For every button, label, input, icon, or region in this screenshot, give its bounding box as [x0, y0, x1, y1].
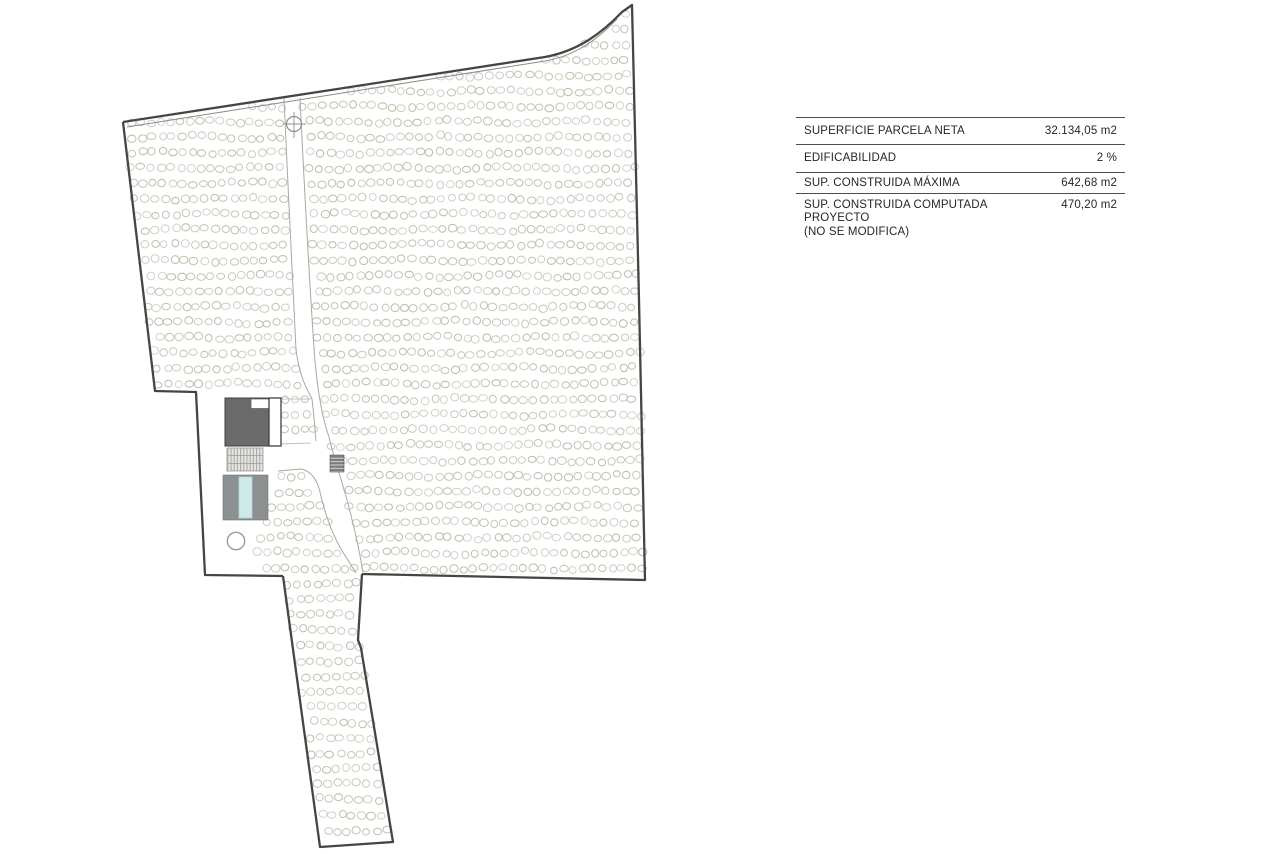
olive-tree — [516, 135, 524, 142]
olive-tree — [575, 149, 582, 156]
olive-tree — [373, 320, 380, 326]
olive-tree — [432, 517, 440, 524]
olive-tree — [438, 103, 445, 110]
olive-tree — [524, 119, 531, 125]
olive-tree — [439, 226, 446, 233]
olive-tree — [346, 444, 355, 450]
olive-tree — [420, 256, 427, 263]
olive-tree — [462, 551, 469, 559]
olive-tree — [185, 288, 192, 295]
olive-tree — [366, 149, 374, 156]
olive-tree — [553, 488, 561, 496]
olive-tree — [243, 321, 250, 328]
olive-tree — [471, 518, 479, 526]
olive-tree — [608, 458, 615, 466]
olive-tree — [589, 210, 596, 217]
olive-tree — [477, 242, 486, 249]
olive-tree — [358, 193, 366, 201]
olive-tree — [574, 181, 583, 187]
olive-tree — [263, 321, 270, 327]
olive-tree — [200, 195, 208, 203]
olive-tree — [630, 379, 637, 386]
olive-tree — [352, 827, 360, 834]
olive-tree — [476, 443, 483, 450]
path-left-edge — [284, 98, 316, 441]
olive-tree — [547, 258, 555, 265]
olive-tree — [349, 194, 356, 201]
olive-tree — [451, 366, 459, 373]
olive-tree — [321, 396, 328, 403]
olive-tree — [465, 472, 472, 480]
olive-tree — [467, 86, 475, 93]
olive-tree — [631, 288, 639, 294]
olive-tree — [340, 811, 347, 818]
olive-tree — [249, 178, 258, 185]
olive-tree — [405, 488, 414, 495]
olive-tree — [586, 102, 593, 109]
olive-tree — [167, 133, 175, 140]
olive-tree — [405, 473, 413, 480]
olive-tree — [387, 149, 394, 156]
olive-tree — [400, 456, 407, 463]
olive-tree — [398, 241, 406, 248]
olive-tree — [456, 181, 463, 188]
olive-tree — [205, 117, 213, 123]
olive-tree — [330, 226, 338, 233]
olive-tree — [420, 567, 428, 573]
olive-tree — [409, 240, 416, 247]
olive-tree — [306, 658, 313, 664]
olive-tree — [527, 348, 534, 355]
olive-tree — [312, 565, 319, 573]
olive-tree — [490, 564, 497, 571]
olive-tree — [380, 195, 388, 202]
olive-tree — [627, 242, 634, 249]
olive-tree — [451, 551, 458, 558]
olive-tree — [247, 163, 254, 171]
olive-tree — [332, 579, 340, 586]
olive-tree — [521, 520, 528, 527]
olive-tree — [325, 828, 333, 835]
olive-tree — [390, 564, 398, 570]
olive-tree — [427, 256, 435, 263]
olive-tree — [414, 472, 422, 479]
olive-tree — [395, 149, 403, 155]
olive-tree — [492, 380, 500, 386]
olive-tree — [477, 351, 485, 358]
olive-tree — [631, 488, 640, 495]
olive-tree — [286, 489, 293, 496]
olive-tree — [329, 257, 337, 263]
olive-tree — [312, 318, 321, 324]
olive-tree — [449, 303, 457, 310]
olive-tree — [244, 334, 251, 341]
row-value: 470,20 m2 — [1061, 199, 1117, 212]
olive-tree — [369, 193, 376, 200]
olive-tree — [616, 87, 624, 94]
olive-tree — [504, 488, 513, 494]
olive-tree — [539, 425, 547, 432]
olive-tree — [316, 751, 324, 758]
olive-tree — [295, 534, 303, 541]
olive-tree — [409, 226, 417, 234]
olive-tree — [367, 179, 375, 187]
olive-tree — [533, 504, 542, 511]
olive-tree — [339, 428, 347, 435]
olive-tree — [317, 241, 326, 249]
olive-tree — [426, 89, 434, 95]
olive-tree — [309, 426, 317, 432]
olive-tree — [380, 456, 387, 463]
olive-tree — [441, 303, 449, 311]
olive-tree — [473, 486, 481, 493]
olive-tree — [594, 352, 603, 358]
olive-tree — [585, 181, 594, 188]
olive-tree — [576, 194, 584, 201]
olive-tree — [623, 71, 631, 77]
olive-tree — [329, 242, 336, 248]
olive-tree — [415, 180, 423, 187]
olive-tree — [477, 101, 484, 109]
olive-tree — [583, 134, 591, 141]
olive-tree — [345, 287, 353, 294]
olive-tree — [474, 133, 482, 140]
olive-tree — [560, 209, 567, 217]
olive-tree — [240, 257, 248, 264]
olive-tree — [435, 166, 443, 174]
olive-tree — [205, 319, 212, 325]
olive-tree — [420, 196, 427, 203]
olive-tree — [501, 412, 508, 419]
olive-tree — [447, 89, 455, 96]
olive-tree — [496, 87, 504, 94]
olive-tree — [364, 796, 373, 803]
olive-tree — [462, 518, 470, 525]
olive-tree — [325, 795, 333, 802]
olive-tree — [505, 504, 513, 511]
olive-tree — [588, 364, 596, 372]
olive-tree — [220, 258, 227, 265]
olive-tree — [553, 148, 561, 155]
olive-tree — [376, 798, 383, 805]
olive-tree — [324, 382, 332, 388]
olive-tree — [609, 210, 617, 217]
olive-tree — [391, 379, 399, 387]
olive-tree — [354, 797, 362, 804]
olive-tree — [575, 351, 583, 358]
olive-tree — [620, 520, 628, 527]
olive-tree — [622, 471, 630, 478]
site-data-table: SUPERFICIE PARCELA NETA 32.134,05 m2 EDI… — [796, 117, 1125, 246]
olive-tree — [619, 378, 628, 384]
olive-tree — [187, 118, 194, 125]
olive-tree — [357, 135, 365, 143]
olive-tree — [563, 443, 572, 449]
olive-tree — [592, 486, 600, 493]
olive-tree — [576, 257, 584, 265]
olive-tree — [178, 133, 187, 140]
olive-tree — [583, 441, 591, 449]
olive-tree — [319, 226, 328, 233]
olive-tree — [555, 350, 563, 357]
olive-tree — [554, 473, 562, 480]
olive-tree — [142, 256, 149, 263]
olive-tree — [465, 502, 472, 508]
olive-tree — [196, 117, 204, 124]
olive-tree — [534, 473, 542, 479]
olive-tree — [539, 305, 547, 312]
olive-tree — [310, 209, 317, 217]
olive-tree — [589, 301, 596, 308]
olive-tree — [334, 610, 342, 616]
olive-tree — [601, 58, 608, 64]
olive-tree — [375, 471, 383, 478]
olive-tree — [270, 256, 278, 262]
olive-tree — [586, 458, 595, 465]
olive-tree — [389, 257, 396, 264]
olive-tree — [597, 302, 605, 309]
olive-tree — [374, 379, 381, 387]
table-row: SUP. CONSTRUIDA MÁXIMA 642,68 m2 — [796, 172, 1125, 193]
olive-tree — [575, 73, 583, 79]
olive-tree — [225, 319, 232, 325]
olive-tree — [570, 410, 578, 417]
olive-tree — [403, 162, 411, 170]
olive-tree — [451, 517, 458, 525]
olive-tree — [320, 196, 327, 203]
olive-tree — [573, 57, 581, 64]
olive-tree — [581, 116, 589, 123]
olive-tree — [503, 163, 511, 170]
olive-tree — [341, 394, 349, 401]
olive-tree — [536, 104, 543, 110]
olive-tree — [265, 380, 272, 387]
olive-tree — [577, 242, 584, 249]
olive-tree — [598, 226, 607, 234]
olive-tree — [266, 271, 274, 277]
olive-tree — [543, 118, 551, 125]
olive-tree — [519, 211, 528, 218]
olive-tree — [228, 178, 235, 185]
olive-tree — [553, 440, 561, 447]
olive-tree — [147, 164, 154, 171]
olive-tree — [366, 134, 375, 141]
olive-tree — [492, 336, 500, 343]
olive-tree — [519, 304, 527, 310]
olive-tree — [322, 365, 329, 372]
olive-tree — [563, 117, 571, 123]
olive-tree — [506, 271, 513, 279]
olive-tree — [305, 165, 313, 172]
olive-tree — [549, 302, 557, 310]
olive-tree — [277, 135, 284, 141]
olive-tree — [491, 520, 498, 527]
olive-tree — [404, 334, 412, 341]
olive-tree — [383, 163, 391, 170]
olive-tree — [307, 735, 314, 742]
olive-tree — [160, 133, 167, 140]
olive-tree — [374, 828, 382, 835]
olive-tree — [590, 410, 599, 417]
olive-tree — [147, 133, 156, 140]
olive-tree — [605, 102, 613, 108]
olive-tree — [364, 334, 373, 341]
olive-tree — [404, 120, 412, 126]
olive-tree — [425, 134, 432, 141]
olive-tree — [242, 211, 250, 218]
olive-tree — [249, 151, 256, 158]
olive-tree — [395, 533, 403, 541]
olive-tree — [325, 166, 333, 172]
olive-tree — [377, 443, 384, 450]
olive-tree — [474, 471, 483, 478]
olive-tree — [231, 226, 239, 234]
olive-tree — [297, 596, 304, 603]
olive-tree — [580, 565, 589, 572]
olive-tree — [310, 257, 319, 264]
olive-tree — [570, 302, 578, 309]
olive-tree — [360, 257, 368, 265]
olive-tree — [161, 225, 169, 232]
olive-tree — [276, 164, 283, 171]
row-value: 642,68 m2 — [1061, 177, 1117, 190]
olive-tree — [249, 242, 257, 249]
olive-tree — [279, 148, 286, 155]
olive-tree — [328, 703, 335, 710]
olive-tree — [523, 273, 532, 279]
olive-tree — [587, 243, 595, 250]
olive-tree — [383, 548, 390, 554]
olive-tree — [434, 487, 442, 494]
olive-tree — [155, 318, 163, 325]
olive-tree — [591, 41, 598, 48]
olive-tree — [323, 780, 332, 787]
olive-tree — [162, 211, 169, 218]
olive-tree — [541, 320, 549, 326]
olive-tree — [621, 334, 628, 341]
olive-tree — [533, 532, 541, 539]
olive-tree — [547, 197, 555, 204]
olive-tree — [211, 225, 219, 232]
olive-tree — [215, 318, 222, 325]
olive-tree — [270, 242, 277, 248]
olive-tree — [464, 444, 471, 451]
olive-tree — [342, 829, 350, 836]
olive-tree — [205, 334, 212, 341]
olive-tree — [555, 181, 562, 188]
olive-tree — [545, 441, 552, 448]
table-row: EDIFICABILIDAD 2 % — [796, 144, 1125, 172]
olive-tree — [345, 594, 353, 601]
olive-tree — [594, 535, 601, 541]
olive-tree — [140, 195, 149, 203]
olive-tree — [451, 411, 458, 418]
olive-tree — [545, 147, 552, 155]
olive-tree — [414, 273, 421, 280]
olive-tree — [531, 333, 539, 340]
olive-tree — [601, 335, 609, 342]
olive-tree — [526, 503, 534, 510]
olive-tree — [622, 120, 630, 127]
olive-tree — [637, 428, 645, 435]
olive-tree — [560, 565, 569, 572]
olive-tree — [316, 117, 324, 124]
olive-tree — [276, 120, 284, 127]
olive-tree — [451, 394, 459, 401]
olive-tree — [464, 335, 471, 342]
olive-tree — [426, 180, 433, 188]
olive-tree — [443, 533, 451, 540]
olive-tree — [294, 518, 301, 525]
olive-tree — [200, 181, 208, 187]
olive-tree — [408, 255, 417, 262]
olive-tree — [173, 318, 181, 325]
olive-tree — [218, 134, 226, 141]
olive-tree — [620, 411, 627, 418]
olive-tree — [624, 271, 631, 278]
olive-tree — [189, 349, 197, 355]
olive-tree — [465, 149, 473, 157]
olive-tree — [278, 472, 285, 479]
olive-tree — [444, 332, 452, 339]
olive-tree — [600, 42, 607, 49]
olive-tree — [613, 443, 622, 451]
olive-tree — [457, 227, 465, 234]
olive-tree — [616, 102, 623, 110]
olive-tree — [348, 458, 357, 465]
olive-tree — [212, 209, 219, 216]
olive-tree — [612, 119, 619, 125]
olive-tree — [463, 318, 470, 324]
olive-tree — [435, 441, 443, 447]
olive-tree — [556, 103, 564, 111]
olive-tree — [376, 120, 383, 127]
olive-tree — [444, 165, 451, 172]
olive-tree — [378, 241, 386, 248]
olive-tree — [431, 409, 439, 416]
olive-tree — [316, 793, 323, 801]
olive-tree — [533, 288, 540, 295]
olive-tree — [489, 395, 496, 403]
olive-tree — [440, 209, 448, 216]
olive-tree — [206, 165, 214, 172]
olive-tree — [315, 166, 322, 173]
olive-tree — [487, 243, 495, 250]
olive-tree — [610, 334, 619, 341]
olive-tree — [454, 287, 461, 294]
olive-tree — [356, 151, 363, 158]
olive-tree — [352, 319, 359, 326]
olive-tree — [409, 457, 417, 463]
olive-tree — [436, 533, 444, 540]
olive-tree — [597, 243, 605, 250]
row-label: EDIFICABILIDAD — [804, 152, 896, 165]
olive-tree — [610, 549, 617, 557]
olive-tree — [494, 504, 502, 511]
olive-tree — [456, 150, 463, 156]
olive-tree — [317, 702, 325, 710]
olive-tree — [380, 212, 388, 219]
olive-tree — [489, 257, 497, 264]
olive-tree — [420, 410, 428, 416]
olive-tree — [316, 734, 323, 740]
olive-tree — [349, 350, 357, 357]
olive-tree — [566, 72, 574, 79]
olive-tree — [401, 411, 409, 418]
olive-tree — [292, 426, 299, 434]
olive-tree — [416, 104, 424, 110]
olive-tree — [364, 287, 372, 294]
